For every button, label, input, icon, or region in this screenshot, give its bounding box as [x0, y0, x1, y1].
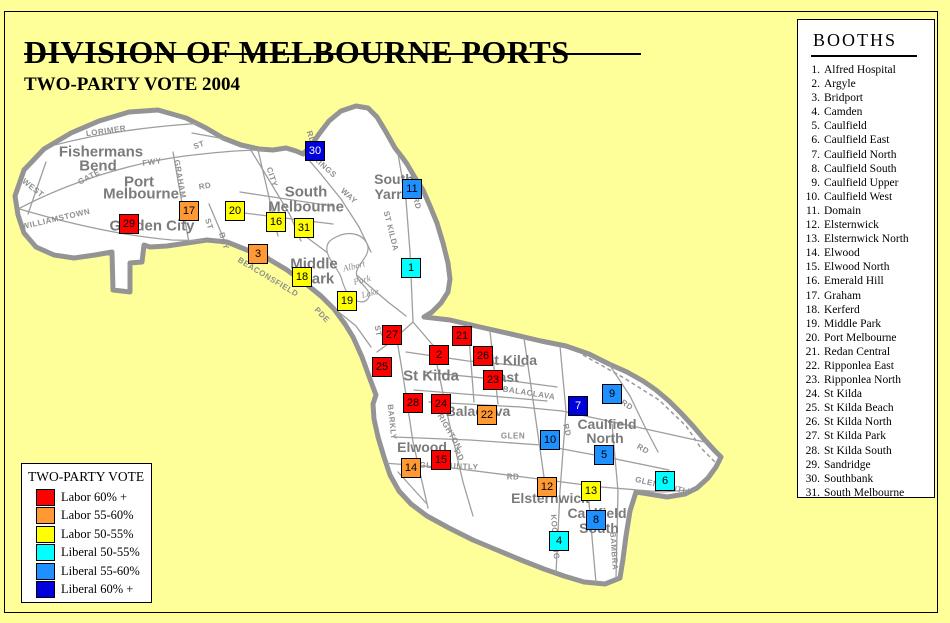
booth-name: Domain: [824, 204, 861, 218]
booth-name: Ripponlea North: [824, 373, 901, 387]
booth-name: Caulfield Upper: [824, 176, 898, 190]
booth-name: Camden: [824, 105, 862, 119]
booth-list-item: 26.St Kilda North: [798, 415, 934, 429]
booth-list-item: 3.Bridport: [798, 91, 934, 105]
booth-list-item: 14.Elwood: [798, 246, 934, 260]
legend-label: Labor 50-55%: [61, 527, 134, 542]
booth-number: 25.: [798, 401, 820, 415]
booth-marker-18: 18: [292, 267, 312, 287]
booth-list-item: 1.Alfred Hospital: [798, 63, 934, 77]
booth-number: 5.: [798, 119, 820, 133]
legend-item: Liberal 55-60%: [22, 562, 151, 581]
booths-panel: BOOTHS 1.Alfred Hospital2.Argyle3.Bridpo…: [797, 19, 935, 498]
booth-name: Elsternwick North: [824, 232, 909, 246]
booth-list-item: 4.Camden: [798, 105, 934, 119]
booth-marker-19: 19: [337, 291, 357, 311]
page-subtitle: TWO-PARTY VOTE 2004: [24, 74, 240, 96]
booth-marker-26: 26: [473, 346, 493, 366]
booth-number: 3.: [798, 91, 820, 105]
booth-marker-8: 8: [586, 510, 606, 530]
booth-marker-7: 7: [568, 396, 588, 416]
booth-list-item: 28.St Kilda South: [798, 444, 934, 458]
booth-number: 17.: [798, 289, 820, 303]
booth-name: Argyle: [824, 77, 856, 91]
booth-number: 24.: [798, 387, 820, 401]
booth-name: Elwood North: [824, 260, 889, 274]
booth-number: 6.: [798, 133, 820, 147]
legend-item: Labor 60% +: [22, 488, 151, 507]
booth-marker-25: 25: [372, 357, 392, 377]
legend-rows: Labor 60% +Labor 55-60%Labor 50-55%Liber…: [22, 488, 151, 599]
booth-list-item: 25.St Kilda Beach: [798, 401, 934, 415]
booth-list-item: 9.Caulfield Upper: [798, 176, 934, 190]
booth-marker-29: 29: [119, 214, 139, 234]
booth-marker-21: 21: [452, 326, 472, 346]
legend-label: Labor 60% +: [61, 490, 127, 505]
booth-marker-13: 13: [581, 481, 601, 501]
booth-name: St Kilda North: [824, 415, 892, 429]
booth-list-item: 22.Ripponlea East: [798, 359, 934, 373]
booths-panel-title: BOOTHS: [813, 30, 934, 51]
booth-name: Graham: [824, 289, 861, 303]
booth-number: 11.: [798, 204, 820, 218]
booth-name: Elwood: [824, 246, 860, 260]
booth-list-item: 16.Emerald Hill: [798, 274, 934, 288]
booth-number: 31.: [798, 486, 820, 500]
legend-swatch-labor55: [36, 507, 55, 524]
legend-label: Liberal 55-60%: [61, 564, 140, 579]
booth-name: St Kilda South: [824, 444, 892, 458]
booth-marker-1: 1: [401, 258, 421, 278]
booth-list-item: 20.Port Melbourne: [798, 331, 934, 345]
legend-swatch-liberal60: [36, 581, 55, 598]
booth-name: Redan Central: [824, 345, 890, 359]
booth-number: 10.: [798, 190, 820, 204]
legend-item: Labor 50-55%: [22, 525, 151, 544]
booth-number: 14.: [798, 246, 820, 260]
booth-list-item: 23.Ripponlea North: [798, 373, 934, 387]
booth-name: Caulfield East: [824, 133, 889, 147]
booth-number: 1.: [798, 63, 820, 77]
booth-list-item: 11.Domain: [798, 204, 934, 218]
legend-item: Liberal 60% +: [22, 581, 151, 600]
booth-marker-3: 3: [248, 244, 268, 264]
booth-number: 20.: [798, 331, 820, 345]
booth-marker-15: 15: [431, 450, 451, 470]
booth-list-item: 7.Caulfield North: [798, 148, 934, 162]
booth-marker-23: 23: [483, 370, 503, 390]
booth-list-item: 13.Elsternwick North: [798, 232, 934, 246]
melbourne-ports-map-page: { "title": "DIVISION OF MELBOURNE PORTS"…: [0, 0, 950, 623]
booth-number: 30.: [798, 472, 820, 486]
booth-number: 23.: [798, 373, 820, 387]
booth-name: Caulfield South: [824, 162, 897, 176]
booth-list-item: 24.St Kilda: [798, 387, 934, 401]
booth-marker-12: 12: [537, 477, 557, 497]
booth-marker-6: 6: [655, 471, 675, 491]
booth-name: Caulfield: [824, 119, 867, 133]
booth-marker-24: 24: [431, 394, 451, 414]
booth-name: Caulfield West: [824, 190, 892, 204]
booth-marker-31: 31: [294, 218, 314, 238]
legend-title: TWO-PARTY VOTE: [28, 469, 151, 485]
booth-name: St Kilda Beach: [824, 401, 894, 415]
booth-list-item: 19.Middle Park: [798, 317, 934, 331]
booth-list-item: 17.Graham: [798, 289, 934, 303]
booth-number: 2.: [798, 77, 820, 91]
booth-name: Southbank: [824, 472, 873, 486]
booth-number: 27.: [798, 429, 820, 443]
booths-title-underline: [811, 55, 917, 57]
booth-number: 4.: [798, 105, 820, 119]
legend-label: Liberal 60% +: [61, 582, 133, 597]
booth-name: St Kilda Park: [824, 429, 886, 443]
booth-number: 8.: [798, 162, 820, 176]
booth-number: 29.: [798, 458, 820, 472]
legend-swatch-labor50: [36, 526, 55, 543]
booth-name: Elsternwick: [824, 218, 879, 232]
booth-list-item: 21.Redan Central: [798, 345, 934, 359]
booth-marker-14: 14: [401, 458, 421, 478]
booth-name: Kerferd: [824, 303, 860, 317]
booth-name: Alfred Hospital: [824, 63, 896, 77]
booth-marker-17: 17: [179, 201, 199, 221]
booth-number: 16.: [798, 274, 820, 288]
booth-number: 9.: [798, 176, 820, 190]
booth-marker-20: 20: [225, 201, 245, 221]
booth-list-item: 15.Elwood North: [798, 260, 934, 274]
booth-list-item: 12.Elsternwick: [798, 218, 934, 232]
booth-name: Middle Park: [824, 317, 881, 331]
booth-name: Port Melbourne: [824, 331, 897, 345]
title-underline: [24, 53, 641, 55]
booth-number: 28.: [798, 444, 820, 458]
legend-item: Liberal 50-55%: [22, 544, 151, 563]
booth-list-item: 10.Caulfield West: [798, 190, 934, 204]
booth-list: 1.Alfred Hospital2.Argyle3.Bridport4.Cam…: [798, 63, 934, 500]
booth-marker-11: 11: [402, 179, 422, 199]
legend-panel: TWO-PARTY VOTE Labor 60% +Labor 55-60%La…: [21, 463, 152, 603]
booth-number: 22.: [798, 359, 820, 373]
booth-name: South Melbourne: [824, 486, 904, 500]
booth-list-item: 29.Sandridge: [798, 458, 934, 472]
booth-list-item: 6.Caulfield East: [798, 133, 934, 147]
booth-marker-2: 2: [429, 345, 449, 365]
booth-name: Caulfield North: [824, 148, 897, 162]
booth-list-item: 30.Southbank: [798, 472, 934, 486]
booth-marker-9: 9: [602, 384, 622, 404]
booth-number: 18.: [798, 303, 820, 317]
booth-marker-5: 5: [594, 445, 614, 465]
booth-name: St Kilda: [824, 387, 862, 401]
booth-name: Ripponlea East: [824, 359, 894, 373]
legend-swatch-labor60: [36, 489, 55, 506]
booth-marker-10: 10: [540, 430, 560, 450]
booth-number: 12.: [798, 218, 820, 232]
booth-number: 21.: [798, 345, 820, 359]
legend-swatch-liberal50: [36, 544, 55, 561]
booth-marker-4: 4: [549, 531, 569, 551]
booth-number: 19.: [798, 317, 820, 331]
legend-label: Labor 55-60%: [61, 508, 134, 523]
booth-name: Emerald Hill: [824, 274, 884, 288]
booth-marker-30: 30: [305, 141, 325, 161]
booth-number: 13.: [798, 232, 820, 246]
booth-number: 7.: [798, 148, 820, 162]
booth-marker-28: 28: [403, 393, 423, 413]
booth-number: 15.: [798, 260, 820, 274]
booth-marker-27: 27: [382, 325, 402, 345]
booth-number: 26.: [798, 415, 820, 429]
booth-name: Sandridge: [824, 458, 871, 472]
booth-marker-16: 16: [266, 212, 286, 232]
booth-name: Bridport: [824, 91, 863, 105]
legend-swatch-liberal55: [36, 563, 55, 580]
booth-list-item: 31.South Melbourne: [798, 486, 934, 500]
legend-label: Liberal 50-55%: [61, 545, 140, 560]
booth-list-item: 2.Argyle: [798, 77, 934, 91]
booth-list-item: 5.Caulfield: [798, 119, 934, 133]
booth-list-item: 8.Caulfield South: [798, 162, 934, 176]
booth-list-item: 18.Kerferd: [798, 303, 934, 317]
booth-list-item: 27.St Kilda Park: [798, 429, 934, 443]
legend-item: Labor 55-60%: [22, 507, 151, 526]
booth-marker-22: 22: [477, 405, 497, 425]
